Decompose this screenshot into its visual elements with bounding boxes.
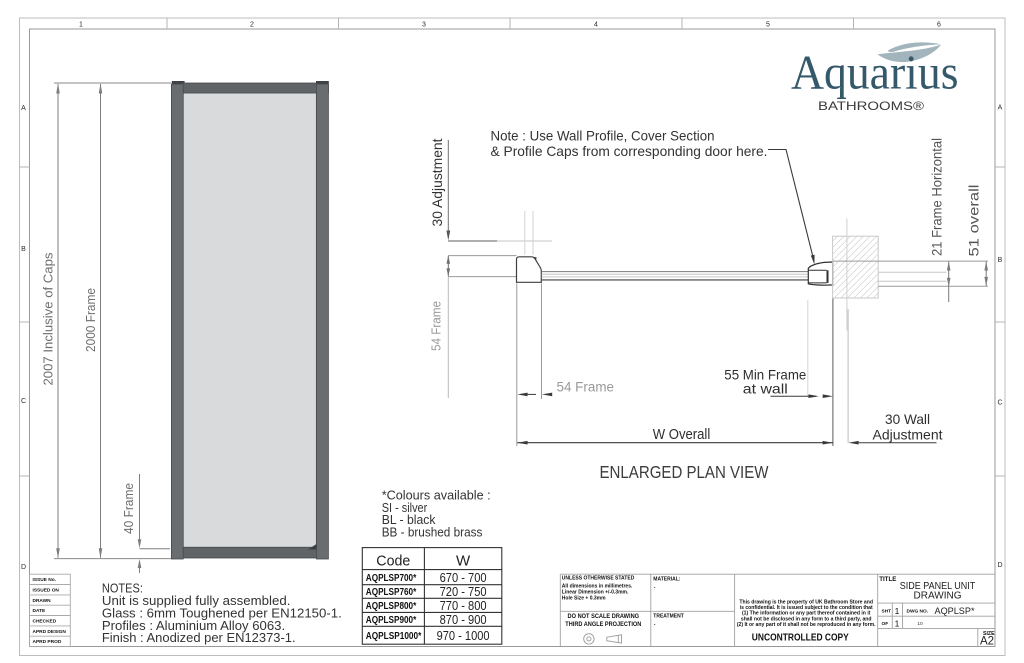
svg-text:ENLARGED PLAN VIEW: ENLARGED PLAN VIEW <box>600 462 769 482</box>
svg-text:UNCONTROLLED COPY: UNCONTROLLED COPY <box>752 632 849 644</box>
svg-text:ISSUE No.: ISSUE No. <box>33 577 56 583</box>
svg-text:DRAWING: DRAWING <box>914 590 962 601</box>
svg-text:Finish : Anodized per EN12373-: Finish : Anodized per EN12373-1. <box>102 630 296 645</box>
svg-text:BATHROOMS®: BATHROOMS® <box>818 99 924 113</box>
svg-text:APRD DESIGN: APRD DESIGN <box>33 629 67 635</box>
svg-text:at wall: at wall <box>743 381 788 397</box>
svg-text:870 - 900: 870 - 900 <box>440 612 487 627</box>
svg-text:TREATMENT: TREATMENT <box>653 613 683 619</box>
svg-text:B: B <box>998 257 1003 264</box>
svg-text:W Overall: W Overall <box>653 427 711 443</box>
svg-text:-: - <box>654 621 656 627</box>
svg-text:1: 1 <box>895 619 900 629</box>
svg-text:B: B <box>21 246 26 253</box>
svg-text:DATE: DATE <box>33 608 47 614</box>
svg-text:APRD PROD: APRD PROD <box>33 639 62 645</box>
svg-text:Hole Size + 0.3mm: Hole Size + 0.3mm <box>562 595 606 601</box>
svg-text:BB - brushed brass: BB - brushed brass <box>382 524 483 539</box>
svg-text:-: - <box>654 584 656 590</box>
svg-text:CHECKED: CHECKED <box>33 618 57 624</box>
svg-text:4: 4 <box>594 22 598 29</box>
svg-text:1: 1 <box>895 606 900 616</box>
svg-text:Note : Use Wall Profile, Cover: Note : Use Wall Profile, Cover Section <box>491 128 715 144</box>
svg-text:(2) It or any part of it shall: (2) It or any part of it shall not be re… <box>737 622 876 628</box>
svg-text:54 Frame: 54 Frame <box>429 301 444 351</box>
svg-text:D: D <box>21 564 26 571</box>
svg-text:OF: OF <box>882 621 889 627</box>
svg-text:DWG NO.: DWG NO. <box>907 609 929 615</box>
svg-text:10: 10 <box>917 621 923 627</box>
svg-text:& Profile Caps from correspond: & Profile Caps from corresponding door h… <box>491 143 768 159</box>
svg-text:A: A <box>21 105 26 112</box>
svg-text:C: C <box>21 398 26 405</box>
svg-text:720 - 750: 720 - 750 <box>440 584 487 599</box>
svg-text:770 - 800: 770 - 800 <box>440 598 487 613</box>
svg-text:6: 6 <box>937 22 941 29</box>
svg-text:ISSUED ON: ISSUED ON <box>33 588 60 594</box>
svg-text:THIRD ANGLE PROJECTION: THIRD ANGLE PROJECTION <box>565 621 641 628</box>
svg-text:Adjustment: Adjustment <box>873 426 943 442</box>
svg-text:SHT: SHT <box>882 609 892 615</box>
svg-text:DRAWN: DRAWN <box>33 598 52 604</box>
svg-text:AQPLSP760*: AQPLSP760* <box>366 587 417 598</box>
svg-text:AQPLSP1000*: AQPLSP1000* <box>366 631 422 642</box>
svg-text:54 Frame: 54 Frame <box>557 380 615 395</box>
svg-text:C: C <box>997 400 1002 407</box>
svg-text:MATERIAL:: MATERIAL: <box>653 576 680 582</box>
svg-text:All dimensions in millimetres.: All dimensions in millimetres. <box>562 583 633 589</box>
svg-text:TITLE: TITLE <box>879 576 896 583</box>
svg-text:970 - 1000: 970 - 1000 <box>437 628 490 643</box>
svg-text:5: 5 <box>766 22 770 29</box>
svg-text:21 Frame Horizontal: 21 Frame Horizontal <box>930 138 945 256</box>
svg-text:Code: Code <box>376 552 410 569</box>
svg-text:3: 3 <box>422 22 426 29</box>
svg-text:A2: A2 <box>980 636 994 648</box>
svg-text:AQPLSP700*: AQPLSP700* <box>366 573 417 584</box>
svg-text:AQPLSP*: AQPLSP* <box>935 606 975 616</box>
svg-text:40 Frame: 40 Frame <box>121 483 136 534</box>
svg-text:D: D <box>997 562 1002 569</box>
svg-text:AQPLSP900*: AQPLSP900* <box>366 615 417 626</box>
svg-text:1: 1 <box>79 22 83 29</box>
svg-text:W: W <box>456 552 471 569</box>
svg-text:2: 2 <box>250 22 254 29</box>
svg-text:A: A <box>998 105 1003 112</box>
svg-text:30 Wall: 30 Wall <box>885 411 930 427</box>
svg-text:UNLESS OTHERWISE STATED: UNLESS OTHERWISE STATED <box>562 576 635 582</box>
svg-text:Aquarius: Aquarius <box>791 45 959 100</box>
svg-text:DO NOT SCALE DRAWING: DO NOT SCALE DRAWING <box>568 613 640 620</box>
svg-text:2000 Frame: 2000 Frame <box>83 288 98 352</box>
svg-text:AQPLSP800*: AQPLSP800* <box>366 601 417 612</box>
svg-text:670 - 700: 670 - 700 <box>440 570 487 585</box>
svg-text:51 overall: 51 overall <box>967 185 982 257</box>
svg-text:2007 Inclusive of Caps: 2007 Inclusive of Caps <box>41 252 56 385</box>
svg-text:30 Adjustment: 30 Adjustment <box>429 138 445 226</box>
